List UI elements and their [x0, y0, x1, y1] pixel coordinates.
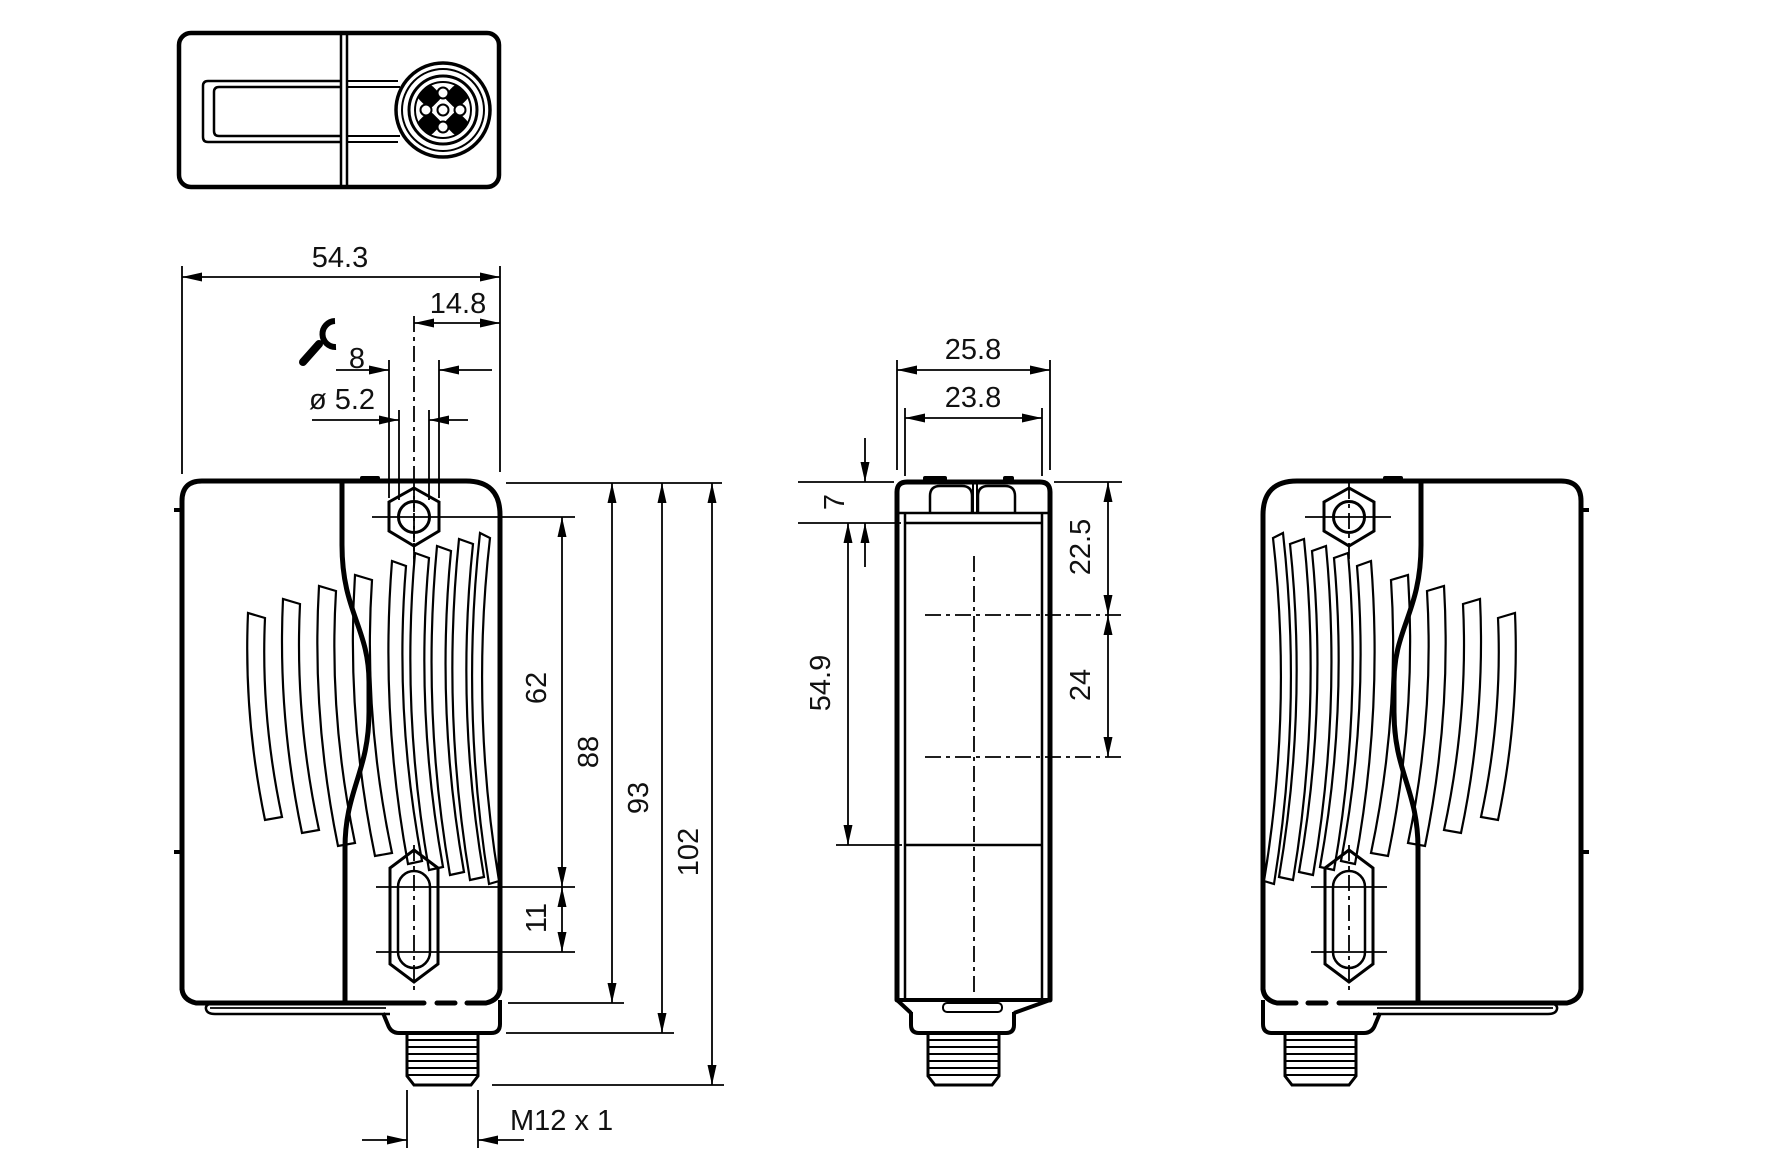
dim-face-width: 23.8 [945, 382, 1001, 414]
dim-head-height: 7 [819, 494, 851, 510]
dim-thread: M12 x 1 [510, 1105, 613, 1137]
dim-body-with-collar: 93 [623, 782, 655, 814]
dim-hole-diameter: ø 5.2 [309, 384, 375, 416]
dim-depth-overall: 25.8 [945, 334, 1001, 366]
dim-body-height: 88 [573, 736, 605, 768]
dim-connector-offset: 14.8 [430, 288, 486, 320]
front-view-right [1263, 476, 1589, 1085]
dim-wrench-size: 8 [349, 343, 365, 375]
wrench-icon [303, 321, 336, 362]
dim-top-hole-offset: 22.5 [1065, 519, 1097, 575]
dimensional-drawing-canvas: 54.3 14.8 8 ø 5.2 62 11 88 93 102 [0, 0, 1772, 1169]
m12-thread-side [928, 1033, 999, 1085]
m12-connector-icon [396, 63, 490, 157]
dim-overall-width: 54.3 [312, 242, 368, 274]
top-view [179, 33, 499, 187]
side-view-dimensions: 25.8 23.8 7 54.9 22.5 24 [798, 334, 1122, 845]
dim-total-height: 102 [673, 828, 705, 876]
dim-slot-length: 11 [521, 903, 553, 933]
dim-hole-spacing: 24 [1065, 669, 1097, 701]
drawing-page: 54.3 14.8 8 ø 5.2 62 11 88 93 102 [0, 0, 1772, 1169]
dim-face-height: 54.9 [805, 655, 837, 711]
dim-hole-center-span: 62 [521, 672, 553, 704]
front-view-left [174, 476, 500, 1085]
